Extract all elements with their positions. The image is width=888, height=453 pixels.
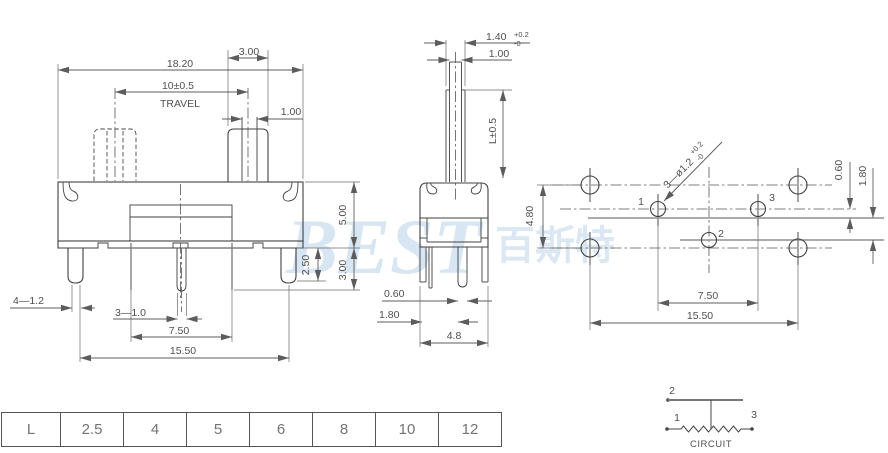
table-value: 12 [438, 413, 501, 446]
resistive-element-icon [667, 426, 752, 432]
table-header-l: L [2, 413, 60, 446]
table-value: 5 [186, 413, 249, 446]
circuit-diagram: 2 1 3 CIRCUIT [665, 385, 757, 450]
mount-ear-icon [63, 182, 78, 201]
dim-tip-width: 1.00 [489, 48, 510, 60]
table-value: 10 [375, 413, 438, 446]
watermark-cjk: 百斯特 [495, 223, 615, 269]
length-option-table: L 2.5 4 5 6 8 10 12 [1, 412, 502, 447]
circuit-pin1-label: 1 [674, 412, 680, 424]
dim-terminal-length: 3.00 [337, 260, 349, 281]
flange-notch-right [253, 243, 263, 248]
dim-mount-span: 15.50 [170, 345, 196, 357]
table-value: 4 [123, 413, 186, 446]
shaft [446, 52, 465, 200]
note-terminal-width: 3—1.0 [115, 307, 146, 319]
dim-pcb-mount-span: 15.50 [687, 310, 713, 322]
mount-ear-icon [283, 182, 298, 201]
knob-phantom [94, 88, 136, 181]
side-view: 1.40 +0.2 -0 1.00 L±0.5 0.60 1.80 4.8 [377, 30, 530, 347]
dim-terminal-span: 7.50 [169, 325, 190, 337]
dim-row-span: 4.80 [524, 206, 536, 227]
dim-overall-width: 18.20 [167, 58, 193, 70]
dim-shaft-tol-plus: +0.2 [514, 30, 529, 39]
mount-pin-left [68, 248, 83, 283]
dim-row-offset: 1.80 [379, 309, 400, 321]
dim-pcb-terminal-span: 7.50 [698, 290, 719, 302]
dim-knob-width: 3.00 [239, 46, 260, 58]
dim-pin-offset: 0.60 [384, 288, 405, 300]
circuit-pin3-label: 3 [751, 409, 757, 421]
mount-ear-icon [427, 183, 437, 194]
drawing-canvas: BEST 百斯特 [0, 0, 888, 453]
dim-body-depth: 4.8 [447, 330, 462, 342]
dim-body-height: 5.00 [337, 205, 349, 226]
dim-row2-offset: 1.80 [857, 166, 869, 187]
dim-shaft-width: 1.40 [486, 31, 507, 43]
dim-shaft-tol-minus: -0 [514, 39, 521, 48]
dim-travel: 10±0.5 [162, 80, 194, 92]
table-value: 8 [312, 413, 375, 446]
pcb-pin1-label: 1 [638, 196, 644, 208]
dim-wiper-offset: 0.60 [833, 160, 845, 181]
switch-technical-drawing: BEST 百斯特 [0, 0, 888, 453]
pcb-pin3-label: 3 [769, 192, 775, 204]
note-mount-pin-width: 4—1.2 [13, 295, 44, 307]
mount-ear-icon [471, 183, 481, 194]
circuit-pin2-label: 2 [669, 385, 675, 397]
knob-solid [228, 88, 268, 181]
dim-slot-width: 1.00 [281, 106, 302, 118]
flange-notch-left [98, 243, 108, 248]
dim-mount-pin-length: 2.50 [300, 255, 312, 276]
table-value: 2.5 [60, 413, 123, 446]
hole-note-group: 3—ø1.2 +0.2 -0 [658, 140, 711, 193]
dim-shaft-length: L±0.5 [487, 118, 499, 144]
table-value: 6 [249, 413, 312, 446]
pcb-pin2-label: 2 [718, 228, 724, 240]
label-travel: TRAVEL [160, 98, 200, 110]
circuit-caption: CIRCUIT [690, 439, 732, 450]
front-window [130, 205, 232, 241]
